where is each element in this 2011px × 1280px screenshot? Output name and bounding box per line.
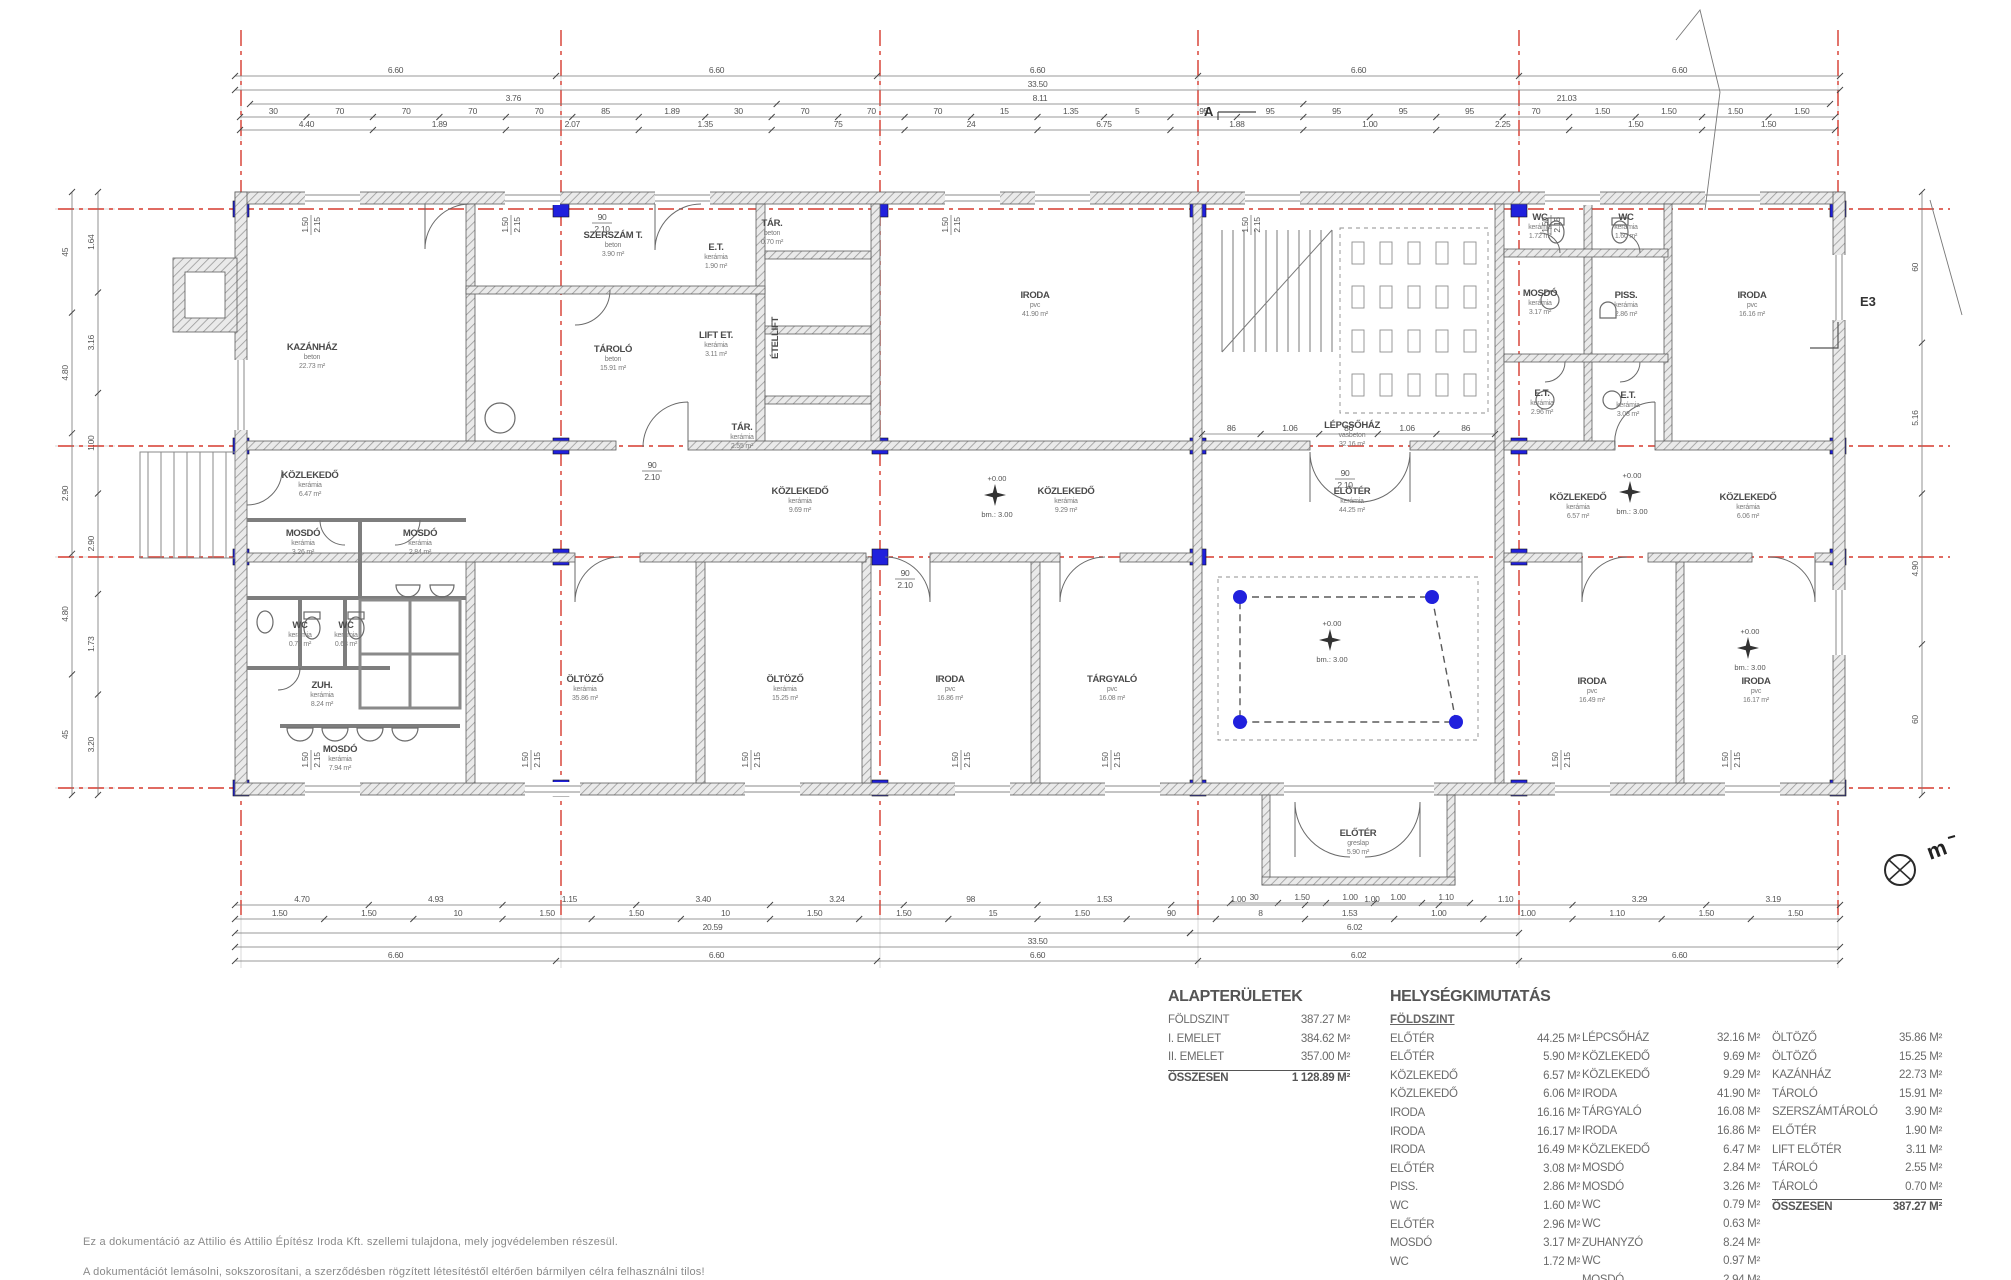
svg-text:33.50: 33.50 — [1028, 936, 1048, 946]
svg-text:70: 70 — [800, 106, 809, 116]
svg-text:70: 70 — [468, 106, 477, 116]
svg-text:6.02: 6.02 — [1347, 922, 1363, 932]
svg-text:1.50: 1.50 — [1788, 908, 1804, 918]
table-row: ÖLTÖZŐ15.25 M² — [1772, 1051, 1942, 1070]
dimension-row: 3.768.1121.03 — [247, 93, 1833, 107]
svg-text:3.17 m²: 3.17 m² — [1529, 309, 1552, 316]
svg-text:ZUH.: ZUH. — [312, 680, 333, 691]
svg-text:1.53: 1.53 — [1342, 908, 1358, 918]
section-marker-a: A — [1204, 104, 1256, 120]
room-label: KÖZLEKEDŐkerámia6.57 m² — [1550, 491, 1607, 520]
svg-text:2.15: 2.15 — [1732, 752, 1742, 768]
svg-text:1.50: 1.50 — [896, 908, 912, 918]
svg-text:E.T.: E.T. — [1620, 390, 1635, 401]
svg-text:KÖZLEKEDŐ: KÖZLEKEDŐ — [1550, 491, 1607, 503]
svg-text:1.50: 1.50 — [1595, 106, 1611, 116]
svg-text:TÁR.: TÁR. — [762, 218, 783, 229]
svg-text:pvc: pvc — [1030, 302, 1041, 309]
copyright-line2: A dokumentációt lemásolni, sokszorosítan… — [83, 1266, 705, 1278]
window-size-mark: 1.502.15 — [940, 215, 962, 235]
svg-text:3.26 m²: 3.26 m² — [292, 549, 315, 556]
window-size-mark: 1.502.15 — [300, 750, 322, 770]
svg-text:1.89: 1.89 — [664, 106, 680, 116]
svg-text:6.60: 6.60 — [709, 65, 725, 75]
svg-text:MOSDÓ: MOSDÓ — [1523, 287, 1557, 299]
room-label: IRODApvc16.16 m² — [1737, 290, 1767, 318]
svg-text:6.60: 6.60 — [1672, 65, 1688, 75]
svg-text:1.50: 1.50 — [1540, 217, 1550, 233]
svg-text:86: 86 — [1461, 423, 1470, 433]
room-label: LIFT ET.kerámia3.11 m² — [699, 330, 733, 358]
floor-heading: FÖLDSZINT — [1390, 1014, 1580, 1033]
svg-text:95: 95 — [1465, 106, 1474, 116]
svg-text:95: 95 — [1266, 106, 1275, 116]
svg-text:1.06: 1.06 — [1399, 423, 1415, 433]
room-label: TÁR.kerámia2.55 m² — [730, 422, 754, 450]
svg-text:1.06: 1.06 — [1282, 423, 1298, 433]
room-label: KÖZLEKEDŐkerámia6.06 m² — [1720, 491, 1777, 520]
svg-text:1.50: 1.50 — [500, 217, 510, 233]
svg-text:98: 98 — [966, 894, 975, 904]
svg-text:2.96 m²: 2.96 m² — [1531, 409, 1554, 416]
hely-total-row: ÖSSZESEN387.27 M² — [1772, 1199, 1942, 1220]
table-row: IRODA16.86 M² — [1582, 1125, 1760, 1144]
svg-text:4.40: 4.40 — [299, 119, 315, 129]
svg-text:1.88: 1.88 — [1229, 119, 1245, 129]
svg-text:1.73: 1.73 — [86, 636, 96, 652]
table-row: II. EMELET357.00 M² — [1168, 1051, 1350, 1070]
table-row: IRODA41.90 M² — [1582, 1088, 1760, 1107]
svg-text:kerámia: kerámia — [288, 632, 312, 639]
svg-text:1.35: 1.35 — [1063, 106, 1079, 116]
table-row: ELŐTÉR44.25 M² — [1390, 1033, 1580, 1052]
svg-text:+0.00: +0.00 — [1623, 471, 1642, 480]
svg-text:pvc: pvc — [1107, 686, 1118, 693]
svg-text:1.50: 1.50 — [1628, 119, 1644, 129]
svg-text:beton: beton — [304, 354, 321, 361]
window-size-mark: 1.502.15 — [1720, 750, 1742, 770]
dimension-row: 6.02 — [1187, 922, 1522, 936]
table-row: ZUHANYZÓ8.24 M² — [1582, 1237, 1760, 1256]
svg-text:30: 30 — [1250, 892, 1259, 902]
table-row: ELŐTÉR1.90 M² — [1772, 1125, 1942, 1144]
svg-text:6.60: 6.60 — [388, 65, 404, 75]
svg-text:IRODA: IRODA — [1020, 290, 1050, 301]
window-size-mark: 1.502.15 — [1100, 750, 1122, 770]
svg-text:0.70 m²: 0.70 m² — [761, 239, 784, 246]
svg-text:15: 15 — [988, 908, 997, 918]
table-title: HELYSÉGKIMUTATÁS — [1390, 988, 1580, 1006]
table-row: ELŐTÉR3.08 M² — [1390, 1163, 1580, 1182]
svg-text:A: A — [1204, 104, 1214, 119]
table-row: LÉPCSŐHÁZ32.16 M² — [1582, 1032, 1760, 1051]
svg-text:2.10: 2.10 — [644, 472, 660, 482]
svg-text:bm.: 3.00: bm.: 3.00 — [981, 510, 1012, 519]
svg-text:1.35: 1.35 — [698, 119, 714, 129]
staircase — [1222, 228, 1488, 413]
svg-text:3.19: 3.19 — [1765, 894, 1781, 904]
svg-text:1.50: 1.50 — [300, 752, 310, 768]
table-title: ALAPTERÜLETEK — [1168, 988, 1350, 1006]
room-label: KAZÁNHÁZbeton22.73 m² — [287, 342, 338, 370]
window-size-mark: 1.502.15 — [520, 750, 542, 770]
svg-text:15.91 m²: 15.91 m² — [600, 365, 627, 372]
svg-text:6.60: 6.60 — [1351, 65, 1367, 75]
door-size-mark: 902.10 — [642, 460, 662, 482]
svg-text:TÁROLÓ: TÁROLÓ — [594, 343, 632, 355]
benchmark-symbol: m — [1885, 835, 1955, 885]
elevation-markers: +0.00bm.: 3.00+0.00bm.: 3.00+0.00bm.: 3.… — [981, 471, 1765, 672]
svg-text:32.16 m²: 32.16 m² — [1339, 441, 1366, 448]
room-label: KÖZLEKEDŐkerámia9.69 m² — [772, 485, 829, 514]
window-size-mark: 1.502.15 — [740, 750, 762, 770]
svg-text:IRODA: IRODA — [1741, 676, 1771, 687]
svg-text:beton: beton — [605, 242, 622, 249]
svg-text:TÁR.: TÁR. — [732, 422, 753, 433]
svg-text:1.10: 1.10 — [1438, 892, 1454, 902]
svg-text:4.90: 4.90 — [1910, 561, 1920, 577]
svg-text:90: 90 — [598, 212, 607, 222]
table-row: TÁROLÓ2.55 M² — [1772, 1162, 1942, 1181]
svg-text:+0.00: +0.00 — [1741, 627, 1760, 636]
svg-text:1.50: 1.50 — [1699, 908, 1715, 918]
svg-text:20.59: 20.59 — [703, 922, 723, 932]
window-size-mark: 1.502.15 — [1240, 215, 1262, 235]
svg-text:1.64: 1.64 — [86, 234, 96, 250]
svg-text:IRODA: IRODA — [1577, 676, 1607, 687]
svg-text:kerámia: kerámia — [408, 540, 432, 547]
table-row: WC0.79 M² — [1582, 1199, 1760, 1218]
svg-text:2.15: 2.15 — [532, 752, 542, 768]
room-label: ÉTELLIFT — [770, 317, 781, 359]
table-row: KÖZLEKEDŐ9.29 M² — [1582, 1069, 1760, 1088]
svg-text:1.50: 1.50 — [1294, 892, 1310, 902]
svg-text:70: 70 — [402, 106, 411, 116]
room-label: IRODApvc16.49 m² — [1577, 676, 1607, 704]
svg-text:5.16: 5.16 — [1910, 410, 1920, 426]
svg-text:1.50: 1.50 — [740, 752, 750, 768]
svg-text:1.50: 1.50 — [1661, 106, 1677, 116]
svg-text:1.90 m²: 1.90 m² — [705, 263, 728, 270]
svg-text:ÖLTÖZŐ: ÖLTÖZŐ — [766, 673, 803, 685]
svg-text:kerámia: kerámia — [298, 482, 322, 489]
svg-text:WC: WC — [292, 620, 308, 631]
elevation-marker: +0.00bm.: 3.00 — [1734, 627, 1765, 672]
svg-text:7.94 m²: 7.94 m² — [329, 765, 352, 772]
svg-text:1.50: 1.50 — [1100, 752, 1110, 768]
table-row: PISS.2.86 M² — [1390, 1181, 1580, 1200]
svg-text:70: 70 — [867, 106, 876, 116]
dimension-row: 6.606.606.606.026.60 — [232, 950, 1843, 964]
svg-text:2.15: 2.15 — [1252, 217, 1262, 233]
floor-drain — [485, 403, 515, 433]
svg-text:3.40: 3.40 — [695, 894, 711, 904]
svg-text:E3: E3 — [1860, 294, 1876, 309]
svg-text:2.15: 2.15 — [512, 217, 522, 233]
svg-text:kerámia: kerámia — [1054, 498, 1078, 505]
svg-text:41.90 m²: 41.90 m² — [1022, 311, 1049, 318]
svg-text:1.50: 1.50 — [940, 217, 950, 233]
svg-text:2.15: 2.15 — [1112, 752, 1122, 768]
table-row: KÖZLEKEDŐ6.06 M² — [1390, 1088, 1580, 1107]
svg-text:6.60: 6.60 — [1672, 950, 1688, 960]
svg-text:3.08 m²: 3.08 m² — [1617, 411, 1640, 418]
svg-text:beton: beton — [764, 230, 781, 237]
room-label: PISS.kerámia2.86 m² — [1614, 290, 1638, 318]
room-label: KÖZLEKEDŐkerámia6.47 m² — [282, 469, 339, 498]
elevation-marker: +0.00bm.: 3.00 — [1616, 471, 1647, 516]
svg-text:1.00: 1.00 — [86, 435, 96, 451]
svg-text:1.50: 1.50 — [1240, 217, 1250, 233]
svg-text:1.60 m²: 1.60 m² — [1615, 233, 1638, 240]
svg-text:30: 30 — [734, 106, 743, 116]
window-size-mark: 1.502.15 — [950, 750, 972, 770]
svg-text:WC: WC — [338, 620, 354, 631]
svg-text:kerámia: kerámia — [328, 756, 352, 763]
room-label: MOSDÓkerámia2.84 m² — [403, 527, 437, 556]
svg-text:6.75: 6.75 — [1096, 119, 1112, 129]
svg-text:90: 90 — [1167, 908, 1176, 918]
svg-text:1.10: 1.10 — [1498, 894, 1514, 904]
table-row: WC1.72 M² — [1390, 1256, 1580, 1275]
svg-text:1.15: 1.15 — [562, 894, 578, 904]
svg-text:6.60: 6.60 — [388, 950, 404, 960]
svg-text:kerámia: kerámia — [1530, 400, 1554, 407]
svg-text:1.50: 1.50 — [1720, 752, 1730, 768]
svg-text:2.10: 2.10 — [1337, 480, 1353, 490]
svg-text:2.15: 2.15 — [312, 752, 322, 768]
svg-text:ÉTELLIFT: ÉTELLIFT — [770, 317, 781, 359]
svg-text:1.00: 1.00 — [1520, 908, 1536, 918]
skylight-outline — [1218, 577, 1478, 740]
svg-text:6.47 m²: 6.47 m² — [299, 491, 322, 498]
table-row: MOSDÓ2.84 M² — [1582, 1162, 1760, 1181]
room-label: ÖLTÖZŐkerámia15.25 m² — [766, 673, 803, 702]
svg-text:kerámia: kerámia — [334, 632, 358, 639]
svg-text:1.50: 1.50 — [1550, 752, 1560, 768]
window-size-mark: 1.502.15 — [1550, 750, 1572, 770]
svg-text:2.15: 2.15 — [952, 217, 962, 233]
svg-text:15.25 m²: 15.25 m² — [772, 695, 799, 702]
svg-text:PISS.: PISS. — [1615, 290, 1638, 301]
svg-text:2.90: 2.90 — [60, 485, 70, 501]
room-label: SZERSZÁM T.beton3.90 m² — [584, 230, 643, 258]
table-row: KÖZLEKEDŐ6.57 M² — [1390, 1070, 1580, 1089]
room-label: TÁRGYALÓpvc16.08 m² — [1087, 673, 1137, 702]
svg-text:6.06 m²: 6.06 m² — [1737, 513, 1760, 520]
svg-text:3.90 m²: 3.90 m² — [602, 251, 625, 258]
svg-text:IRODA: IRODA — [1737, 290, 1767, 301]
svg-text:1.50: 1.50 — [1794, 106, 1810, 116]
svg-text:16.16 m²: 16.16 m² — [1739, 311, 1766, 318]
svg-text:kerámia: kerámia — [704, 254, 728, 261]
table-row: ELŐTÉR5.90 M² — [1390, 1051, 1580, 1070]
table-row: FÖLDSZINT387.27 M² — [1168, 1014, 1350, 1033]
svg-text:MOSDÓ: MOSDÓ — [403, 527, 437, 539]
table-row: LIFT ELŐTÉR3.11 M² — [1772, 1144, 1942, 1163]
svg-text:bm.: 3.00: bm.: 3.00 — [1316, 655, 1347, 664]
room-label: ELŐTÉRgreslap5.90 m² — [1340, 827, 1377, 856]
svg-text:6.02: 6.02 — [1351, 950, 1367, 960]
table-row: MOSDÓ2.94 M² — [1582, 1274, 1760, 1280]
svg-text:35.86 m²: 35.86 m² — [572, 695, 599, 702]
floor-plan-sheet: +0.00bm.: 3.00+0.00bm.: 3.00+0.00bm.: 3.… — [0, 0, 2011, 1280]
washbasins — [287, 585, 454, 741]
svg-text:1.53: 1.53 — [1097, 894, 1113, 904]
svg-text:kerámia: kerámia — [1614, 302, 1638, 309]
svg-text:KAZÁNHÁZ: KAZÁNHÁZ — [287, 342, 338, 353]
svg-text:6.60: 6.60 — [1030, 65, 1046, 75]
svg-text:6.60: 6.60 — [1030, 950, 1046, 960]
svg-text:kerámia: kerámia — [730, 434, 754, 441]
svg-text:16.08 m²: 16.08 m² — [1099, 695, 1126, 702]
svg-text:SZERSZÁM T.: SZERSZÁM T. — [584, 230, 643, 241]
svg-text:3.76: 3.76 — [506, 93, 522, 103]
room-label: TÁROLÓbeton15.91 m² — [594, 343, 632, 372]
dimension-row: 33.50 — [232, 936, 1843, 950]
table-row: I. EMELET384.62 M² — [1168, 1033, 1350, 1052]
svg-text:LIFT ET.: LIFT ET. — [699, 330, 733, 341]
svg-text:8.11: 8.11 — [1033, 93, 1048, 103]
svg-text:1.50: 1.50 — [1761, 119, 1777, 129]
svg-text:4.80: 4.80 — [60, 365, 70, 381]
table-row: KÖZLEKEDŐ9.69 M² — [1582, 1051, 1760, 1070]
svg-text:pvc: pvc — [1587, 688, 1598, 695]
window-size-mark: 1.502.15 — [500, 215, 522, 235]
svg-text:pvc: pvc — [945, 686, 956, 693]
svg-text:8.24 m²: 8.24 m² — [311, 701, 334, 708]
svg-text:6.57 m²: 6.57 m² — [1567, 513, 1590, 520]
svg-text:IRODA: IRODA — [935, 674, 965, 685]
svg-text:86: 86 — [1227, 423, 1236, 433]
svg-text:1.00: 1.00 — [1364, 894, 1380, 904]
table-row: KÖZLEKEDŐ6.47 M² — [1582, 1144, 1760, 1163]
svg-text:24: 24 — [967, 119, 976, 129]
svg-text:2.15: 2.15 — [752, 752, 762, 768]
svg-text:9.69 m²: 9.69 m² — [789, 507, 812, 514]
svg-text:1.00: 1.00 — [1362, 119, 1378, 129]
door-size-mark: 902.10 — [1335, 468, 1355, 490]
svg-text:0.63 m²: 0.63 m² — [335, 641, 358, 648]
svg-text:2.15: 2.15 — [1552, 217, 1562, 233]
room-label: MOSDÓkerámia3.17 m² — [1523, 287, 1557, 316]
svg-text:ÖLTÖZŐ: ÖLTÖZŐ — [566, 673, 603, 685]
svg-text:+0.00: +0.00 — [1323, 619, 1342, 628]
svg-text:1.72 m²: 1.72 m² — [1529, 233, 1552, 240]
svg-text:4.70: 4.70 — [294, 894, 310, 904]
svg-text:beton: beton — [605, 356, 622, 363]
svg-text:70: 70 — [535, 106, 544, 116]
svg-text:2.10: 2.10 — [897, 580, 913, 590]
table-row: WC0.97 M² — [1582, 1255, 1760, 1274]
svg-text:70: 70 — [335, 106, 344, 116]
svg-text:kerámia: kerámia — [1614, 224, 1638, 231]
svg-text:22.73 m²: 22.73 m² — [299, 363, 326, 370]
svg-text:vasbeton: vasbeton — [1339, 432, 1366, 439]
alap-total-row: ÖSSZESEN1 128.89 M² — [1168, 1070, 1350, 1091]
svg-text:5.90 m²: 5.90 m² — [1347, 849, 1370, 856]
svg-text:1.50: 1.50 — [1728, 106, 1744, 116]
svg-text:kerámia: kerámia — [1566, 504, 1590, 511]
table-row: ÖLTÖZŐ35.86 M² — [1772, 1032, 1942, 1051]
svg-text:21.03: 21.03 — [1557, 93, 1577, 103]
table-row: IRODA16.16 M² — [1390, 1107, 1580, 1126]
svg-text:KÖZLEKEDŐ: KÖZLEKEDŐ — [282, 469, 339, 481]
hely-col3: ÖLTÖZŐ35.86 M²ÖLTÖZŐ15.25 M²KAZÁNHÁZ22.7… — [1772, 1032, 1942, 1220]
svg-text:1.50: 1.50 — [807, 908, 823, 918]
svg-text:90: 90 — [1341, 468, 1350, 478]
alapteruletek-table: ALAPTERÜLETEK FÖLDSZINT387.27 M²I. EMELE… — [1168, 988, 1350, 1090]
dimension-row: 4.401.892.071.3575246.751.881.002.251.50… — [237, 119, 1838, 133]
door-size-mark: 902.10 — [895, 568, 915, 590]
svg-text:1.50: 1.50 — [361, 908, 377, 918]
dimension-row: 3070707070851.8930707070151.355959595959… — [237, 106, 1838, 120]
table-row: IRODA16.49 M² — [1390, 1144, 1580, 1163]
room-label: E.T.kerámia3.08 m² — [1616, 390, 1640, 418]
svg-text:95: 95 — [1332, 106, 1341, 116]
svg-text:8: 8 — [1258, 908, 1263, 918]
svg-text:kerámia: kerámia — [1528, 300, 1552, 307]
svg-text:16.49 m²: 16.49 m² — [1579, 697, 1606, 704]
svg-text:5: 5 — [1135, 106, 1140, 116]
svg-text:1.00: 1.00 — [1431, 908, 1447, 918]
svg-text:2.07: 2.07 — [565, 119, 581, 129]
svg-text:2.25: 2.25 — [1495, 119, 1511, 129]
svg-text:kerámia: kerámia — [310, 692, 334, 699]
svg-text:85: 85 — [601, 106, 610, 116]
svg-text:bm.: 3.00: bm.: 3.00 — [1734, 663, 1765, 672]
svg-text:2.15: 2.15 — [962, 752, 972, 768]
table-row: WC1.60 M² — [1390, 1200, 1580, 1219]
svg-text:90: 90 — [901, 568, 910, 578]
svg-text:ELŐTÉR: ELŐTÉR — [1340, 827, 1377, 839]
table-row: TÁRGYALÓ16.08 M² — [1582, 1106, 1760, 1125]
svg-text:KÖZLEKEDŐ: KÖZLEKEDŐ — [1038, 485, 1095, 497]
svg-text:60: 60 — [1910, 715, 1920, 724]
svg-text:TÁRGYALÓ: TÁRGYALÓ — [1087, 673, 1137, 685]
room-label: TÁR.beton0.70 m² — [761, 218, 784, 246]
svg-text:WC: WC — [1618, 212, 1634, 223]
dimension-row: 454.802.904.8045 — [60, 189, 75, 798]
door-size-mark: 902.10 — [592, 212, 612, 234]
svg-text:3.11 m²: 3.11 m² — [705, 351, 728, 358]
svg-text:3.24: 3.24 — [829, 894, 845, 904]
svg-text:MOSDÓ: MOSDÓ — [286, 527, 320, 539]
svg-text:2.90: 2.90 — [86, 536, 96, 552]
svg-text:1.00: 1.00 — [1230, 894, 1246, 904]
svg-text:44.25 m²: 44.25 m² — [1339, 507, 1366, 514]
elevation-marker: +0.00bm.: 3.00 — [1316, 619, 1347, 664]
room-label: IRODApvc16.17 m² — [1741, 676, 1771, 704]
svg-text:6.60: 6.60 — [709, 950, 725, 960]
svg-text:KÖZLEKEDŐ: KÖZLEKEDŐ — [772, 485, 829, 497]
svg-text:kerámia: kerámia — [291, 540, 315, 547]
svg-text:2.15: 2.15 — [312, 217, 322, 233]
table-row: IRODA16.17 M² — [1390, 1126, 1580, 1145]
dimension-row: 33.50 — [232, 79, 1843, 93]
exterior-stair — [140, 452, 235, 558]
svg-text:90: 90 — [648, 460, 657, 470]
svg-text:4.93: 4.93 — [428, 894, 444, 904]
room-label: E.T.kerámia1.90 m² — [704, 242, 728, 270]
svg-text:KÖZLEKEDŐ: KÖZLEKEDŐ — [1720, 491, 1777, 503]
table-row: WC0.63 M² — [1582, 1218, 1760, 1237]
window-size-mark: 1.502.15 — [300, 215, 322, 235]
alap-rows: FÖLDSZINT387.27 M²I. EMELET384.62 M²II. … — [1168, 1014, 1350, 1070]
table-row: MOSDÓ3.17 M² — [1390, 1237, 1580, 1256]
svg-text:2.86 m²: 2.86 m² — [1615, 311, 1638, 318]
room-label: IRODApvc41.90 m² — [1020, 290, 1050, 318]
